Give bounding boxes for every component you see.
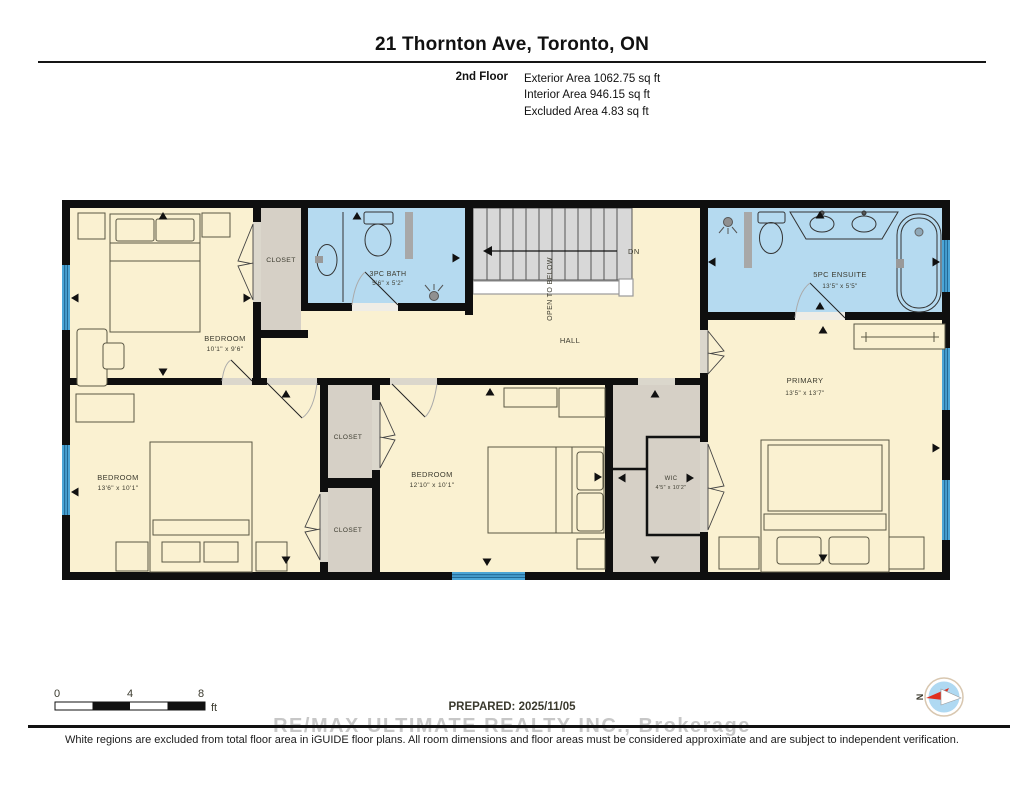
pillow xyxy=(156,219,194,241)
dresser xyxy=(504,388,557,407)
nightstand xyxy=(78,213,105,239)
scale-tick-0: 0 xyxy=(54,688,60,700)
ensuite-label: 5PC ENSUITE xyxy=(813,270,867,279)
floorplan-page: BEDROOM 10'1" x 9'6" CLOSET 3PC BATH 5'6… xyxy=(0,0,1024,791)
bath-label: 3PC BATH xyxy=(370,271,407,278)
chair xyxy=(103,343,124,369)
scale-unit: ft xyxy=(211,702,217,714)
closet-upper-floor xyxy=(328,385,372,478)
floor-label: 2nd Floor xyxy=(0,71,508,83)
header-rule xyxy=(38,61,986,63)
shower-head-icon xyxy=(724,218,733,227)
shower-partition xyxy=(405,212,413,259)
scale-tick-8: 8 xyxy=(198,688,204,700)
ensuite-floor xyxy=(708,208,942,312)
pillow xyxy=(204,542,238,562)
nightstand xyxy=(116,542,148,571)
pillow xyxy=(577,493,603,531)
compass-north-label: N xyxy=(915,694,925,701)
floor-plan-drawing: BEDROOM 10'1" x 9'6" CLOSET 3PC BATH 5'6… xyxy=(0,0,1024,791)
dresser xyxy=(559,388,605,417)
nightstand xyxy=(577,539,605,569)
faucet xyxy=(315,256,323,263)
shower-partition xyxy=(744,212,752,268)
closet-top-floor xyxy=(261,208,301,330)
exterior-area: Exterior Area 1062.75 sq ft xyxy=(524,71,660,87)
faucet xyxy=(862,211,866,215)
pillow xyxy=(829,537,869,564)
pillow xyxy=(777,537,821,564)
footer-rule xyxy=(28,725,1010,728)
closet-upper-label: CLOSET xyxy=(334,434,362,441)
primary-dims: 13'5" x 13'7" xyxy=(785,390,824,397)
bedroom-sw-dims: 13'6" x 10'1" xyxy=(98,485,139,492)
excluded-area: Excluded Area 4.83 sq ft xyxy=(524,104,660,120)
closet-top-label: CLOSET xyxy=(266,257,296,264)
shower-head-icon xyxy=(430,292,439,301)
tub-drain xyxy=(915,228,923,236)
page-title: 21 Thornton Ave, Toronto, ON xyxy=(0,34,1024,56)
ensuite-dims: 13'5" x 5'5" xyxy=(822,283,857,290)
pillow xyxy=(577,452,603,490)
prepared-date: PREPARED: 2025/11/05 xyxy=(449,701,577,713)
compass: N xyxy=(915,678,963,716)
closet-lower-label: CLOSET xyxy=(334,527,362,534)
nightstand xyxy=(889,537,924,569)
bedroom-s-label: BEDROOM xyxy=(411,470,453,479)
bedroom-nw-label: BEDROOM xyxy=(204,334,246,343)
bedroom-sw-label: BEDROOM xyxy=(97,473,139,482)
scale-tick-4: 4 xyxy=(127,688,133,700)
tub-faucet xyxy=(896,259,904,268)
area-summary: Exterior Area 1062.75 sq ft Interior Are… xyxy=(524,71,660,120)
interior-area: Interior Area 946.15 sq ft xyxy=(524,87,660,103)
pillow xyxy=(116,219,154,241)
open-to-below-label: OPEN TO BELOW xyxy=(547,257,554,321)
blanket-band xyxy=(110,243,200,261)
bedroom-nw-dims: 10'1" x 9'6" xyxy=(207,346,244,353)
pillow xyxy=(162,542,200,562)
wic-label: WIC xyxy=(665,476,678,482)
wic-dims: 4'5" x 10'2" xyxy=(656,485,687,491)
primary-label: PRIMARY xyxy=(787,376,824,385)
blanket-band xyxy=(153,520,249,535)
dresser xyxy=(76,394,134,422)
blanket-band xyxy=(764,514,886,530)
bath-dims: 5'6" x 5'2" xyxy=(372,280,403,287)
bath-floor xyxy=(308,208,465,303)
nightstand xyxy=(719,537,759,569)
stairs-dn-label: DN xyxy=(628,247,640,256)
hall-label: HALL xyxy=(560,336,580,345)
bedroom-s-dims: 12'10" x 10'1" xyxy=(410,482,455,489)
disclaimer-text: White regions are excluded from total fl… xyxy=(0,734,1024,746)
blanket-band xyxy=(556,447,572,533)
nightstand xyxy=(202,213,230,237)
scale-bar: 0 4 8 ft xyxy=(54,688,217,714)
railing-post xyxy=(619,279,633,296)
